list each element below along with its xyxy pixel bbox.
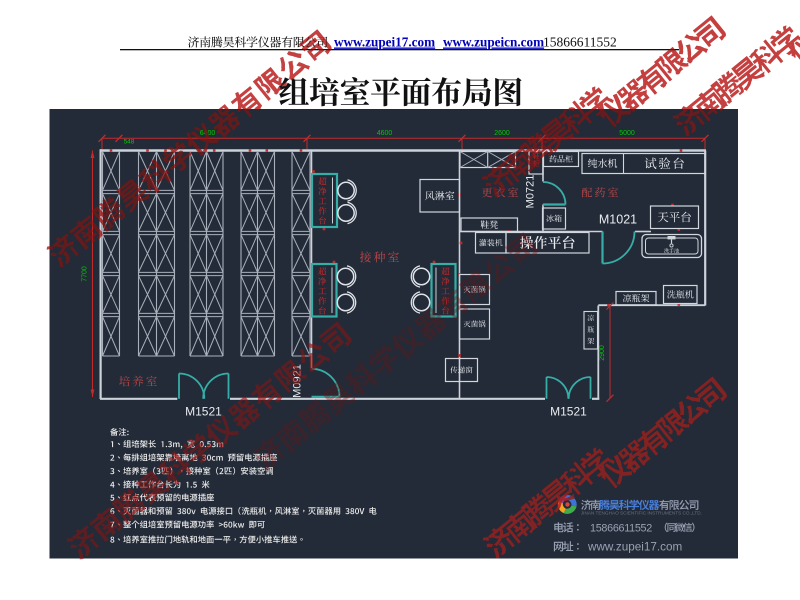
- svg-text:www.zupei17.com: www.zupei17.com: [587, 541, 682, 554]
- svg-text:www.zupei17.com: www.zupei17.com: [334, 35, 435, 50]
- svg-text:M0721: M0721: [525, 175, 537, 209]
- svg-text:7700: 7700: [82, 266, 89, 282]
- svg-text:M1521: M1521: [550, 405, 587, 419]
- svg-text:2600: 2600: [494, 130, 510, 137]
- svg-text:5000: 5000: [619, 130, 635, 137]
- svg-text:15866611552: 15866611552: [543, 35, 617, 50]
- svg-text:548: 548: [124, 139, 135, 146]
- svg-text:www.zupeicn.com: www.zupeicn.com: [443, 35, 544, 50]
- svg-text:M1521: M1521: [185, 405, 222, 419]
- svg-text:M1021: M1021: [599, 213, 637, 227]
- svg-text:JINAN TENGHAO SCIENTIFIC INSTR: JINAN TENGHAO SCIENTIFIC INSTRUMENTS CO.…: [581, 511, 702, 516]
- svg-text:4600: 4600: [377, 130, 393, 137]
- svg-text:15866611552: 15866611552: [590, 523, 652, 535]
- svg-text:2900: 2900: [599, 345, 606, 361]
